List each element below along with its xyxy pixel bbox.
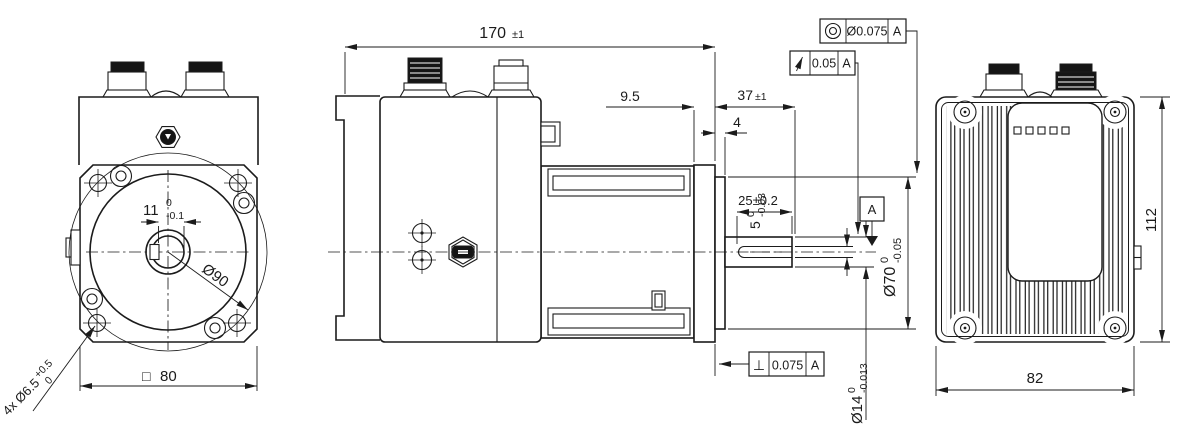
- perpendicularity-datum: A: [811, 359, 820, 373]
- back-view: 112 82: [936, 64, 1170, 396]
- gdt-runout-frame: 0.05 A: [790, 51, 858, 234]
- side-flange: [694, 165, 715, 342]
- back-connector-left: [980, 64, 1028, 97]
- pilot-length-value: 4: [733, 114, 741, 130]
- gdt-concentricity-frame: Ø0.075 A: [820, 19, 917, 173]
- dim-mounting-holes: 4x Ø6.5 +0.5 0: [0, 326, 95, 423]
- shaft-length-value: 37: [737, 87, 753, 103]
- front-hex-plug-icon: [156, 127, 180, 148]
- front-connector-right: [181, 62, 229, 97]
- square-symbol: □: [142, 368, 151, 384]
- mounting-holes-lower: 0: [43, 374, 56, 387]
- front-flange-outline: [80, 165, 257, 342]
- datum-a-triangle: [866, 236, 878, 246]
- drawing-canvas: 11 0 -0.1 Ø90 □ 80 4x Ø6.5 +0.5 0: [0, 0, 1184, 435]
- side-view: 170 ±1 9.5 37 ±1 4 25±0.2: [328, 19, 917, 424]
- runout-tolerance: 0.05: [812, 57, 836, 71]
- concentricity-datum: A: [893, 25, 902, 39]
- overall-length-tol: ±1: [512, 29, 524, 41]
- key-depth-lower: -0.1: [166, 210, 184, 222]
- back-connector-threaded: [1050, 64, 1102, 97]
- front-connector-left: [103, 62, 151, 97]
- runout-datum: A: [842, 57, 851, 71]
- perpendicularity-tolerance: 0.075: [772, 359, 803, 373]
- shaft-diameter-lower: -0.013: [858, 363, 870, 393]
- dim-body-width: 82: [936, 346, 1134, 396]
- dim-body-height: 112: [1140, 97, 1170, 342]
- pilot-diameter-value: Ø70: [882, 267, 899, 297]
- concentricity-tolerance: Ø0.075: [846, 25, 887, 39]
- side-cable-dome: [452, 91, 488, 97]
- side-ground-block: [652, 291, 665, 310]
- body-width-value: 82: [1027, 370, 1044, 387]
- datum-a-label: A: [868, 202, 877, 217]
- front-side-tab: [66, 230, 80, 265]
- shaft-diameter-upper: 0: [846, 387, 858, 393]
- technical-drawing: 11 0 -0.1 Ø90 □ 80 4x Ø6.5 +0.5 0: [0, 0, 1184, 435]
- mounting-holes-value: 4x Ø6.5: [0, 375, 42, 418]
- overall-length-value: 170: [479, 25, 506, 42]
- front-view: 11 0 -0.1 Ø90 □ 80 4x Ø6.5 +0.5 0: [0, 62, 267, 423]
- dim-flange-thickness: 9.5: [606, 88, 694, 162]
- shaft-length-tol: ±1: [755, 91, 767, 103]
- dim-flange-square: □ 80: [80, 346, 257, 391]
- key-depth-upper: 0: [166, 197, 172, 209]
- back-side-tab: [1134, 246, 1141, 269]
- keyway-width-lower: -0.03: [756, 193, 768, 217]
- pilot-diameter-upper: 0: [879, 257, 891, 263]
- side-backplate: [336, 96, 380, 340]
- key-depth-value: 11: [143, 202, 159, 219]
- side-pilot-boss: [715, 177, 725, 329]
- body-height-value: 112: [1143, 208, 1160, 232]
- side-connector-square: [488, 60, 534, 97]
- shaft-diameter-value: Ø14: [849, 396, 866, 424]
- back-led-panel: [1008, 103, 1102, 281]
- side-button: [541, 122, 560, 146]
- datum-a: A: [860, 197, 884, 246]
- gdt-perpendicularity-frame: ⊥ 0.075 A: [715, 344, 824, 376]
- side-motor-slot-top: [548, 169, 690, 196]
- dim-shaft-diameter: Ø14 0 -0.013: [795, 216, 874, 424]
- flange-square-value: 80: [160, 368, 177, 385]
- side-motor-slot-bottom: [548, 308, 690, 335]
- front-keyway: [150, 245, 159, 260]
- side-housing: [380, 97, 541, 342]
- flange-thickness-value: 9.5: [620, 88, 640, 104]
- front-cable-dome: [151, 91, 181, 97]
- perpendicularity-icon: ⊥: [753, 357, 765, 373]
- pilot-diameter-lower: -0.05: [892, 238, 904, 263]
- keyway-width-value: 5: [747, 221, 763, 229]
- side-connector-threaded: [400, 58, 450, 97]
